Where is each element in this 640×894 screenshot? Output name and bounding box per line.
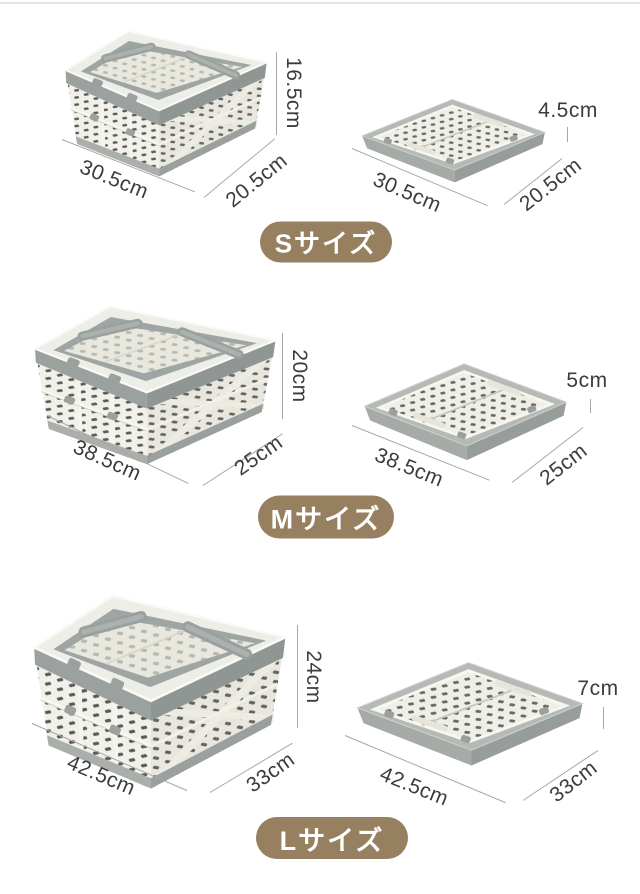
size-badge-m: Mサイズ: [258, 496, 394, 539]
open-height-label: 16.5cm: [281, 57, 305, 129]
product-size-diagram: 30.5cm 20.5cm 16.5cm 30.5cm 20.5cm 4.5cm…: [0, 0, 640, 894]
dimension-line: [297, 625, 298, 728]
folded-height-label: 7cm: [577, 677, 618, 701]
folded-height-label: 5cm: [566, 369, 607, 393]
folded-basket-illustration-l: [350, 651, 590, 775]
open-height-label: 24cm: [301, 650, 325, 703]
size-badge-s: Sサイズ: [260, 222, 392, 263]
open-basket-illustration-s: [63, 17, 268, 179]
open-basket-illustration-m: [32, 291, 277, 467]
size-badge-l: Lサイズ: [256, 817, 408, 859]
top-divider: [0, 2, 640, 4]
dimension-line: [276, 52, 277, 135]
open-height-label: 20cm: [287, 349, 311, 402]
dimension-tick: [603, 707, 604, 729]
folded-height-label: 4.5cm: [538, 99, 598, 123]
dimension-tick: [567, 127, 568, 142]
dimension-tick: [590, 399, 591, 413]
dimension-line: [282, 333, 283, 419]
